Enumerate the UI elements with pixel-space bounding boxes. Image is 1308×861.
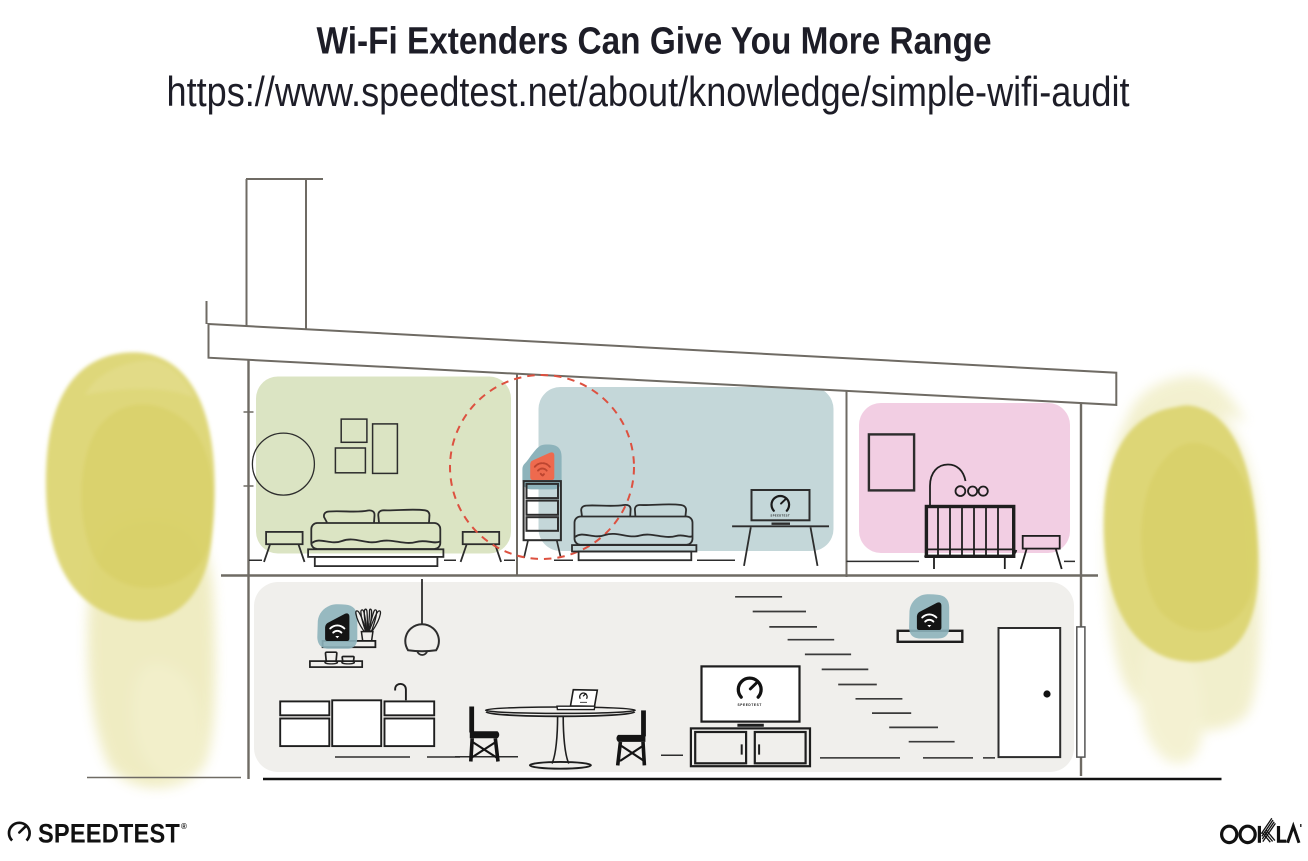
svg-text:SPEEDTEST: SPEEDTEST bbox=[771, 514, 790, 518]
svg-text:SPEEDTEST: SPEEDTEST bbox=[738, 703, 762, 707]
svg-text:®: ® bbox=[181, 822, 187, 831]
svg-text:Wi-Fi Extenders Can Give You M: Wi-Fi Extenders Can Give You More Range bbox=[317, 21, 992, 63]
svg-text:SPEEDTEST: SPEEDTEST bbox=[38, 819, 180, 849]
svg-text:https://www.speedtest.net/abou: https://www.speedtest.net/about/knowledg… bbox=[167, 68, 1130, 115]
